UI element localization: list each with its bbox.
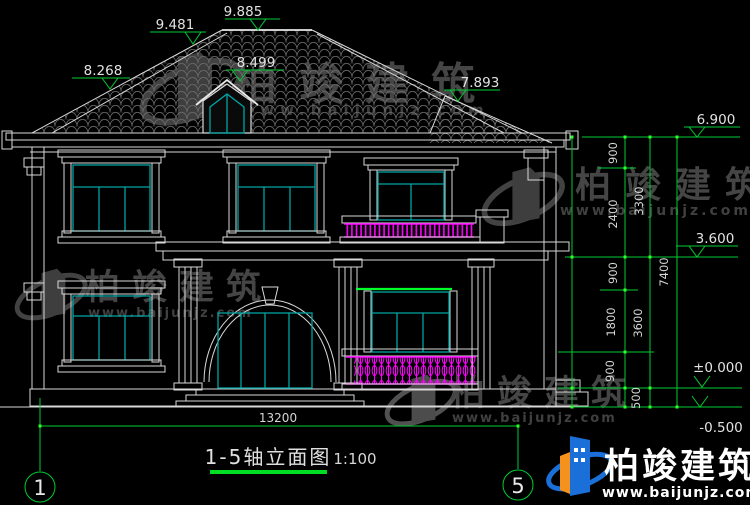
axis-number: 1 [33,476,46,500]
porch-window-trim-right [450,291,457,352]
elevation-flag-upper-hip: 9.481 [150,17,206,44]
pilaster-left-upper [27,167,41,175]
title-underline [210,470,327,474]
elevation-value: 9.481 [156,17,195,33]
window-sill-band [58,366,165,372]
window-cornice-band [62,157,161,163]
elevation-flag-ground: ±0.000 [693,360,743,387]
balcony-door-trim-right [445,170,452,220]
brand-logo-color: 柏竣建筑 www.baijunjz.com [544,436,750,501]
window-trim-left [229,163,236,233]
window-cornice [223,150,330,157]
drawing-scale: 1:100 [333,450,376,468]
balcony-pier-cap [476,210,508,217]
window-sill-band [58,237,165,243]
window-trim-right [152,163,159,233]
elevation-flag-ridge: 9.885 [224,4,280,30]
elevation-flag-grade: -0.500 [692,396,743,436]
title-block: 1-5轴立面图 1:100 [205,445,377,474]
elevation-value: 9.885 [224,4,263,20]
dim-floor: 500 [629,387,643,409]
axis-bubble-5: 5 [503,470,533,500]
dim-segment: 900 [603,360,617,382]
window-cornice [58,150,165,157]
window-glazing [238,165,315,231]
drawing-title: 1-5轴立面图 [205,445,332,469]
watermark-site-text: www.baijunjz.com [452,411,617,426]
window-trim-right [317,163,324,233]
balcony-balusters [346,224,474,237]
dim-overall: 7400 [657,257,671,286]
dim-floor: 3300 [632,186,646,215]
watermark-brand-text: 柏竣建筑 [575,165,750,206]
porch-balusters [354,357,476,384]
dim-floor: 3600 [631,308,645,337]
elevation-value: 8.499 [237,55,276,71]
entrance-step-1 [196,389,344,395]
balcony-door-header [364,158,458,165]
axis-number: 5 [511,474,524,498]
window-cornice-band [227,157,326,163]
entrance-step-2 [186,395,354,401]
window-sill [227,231,326,237]
window-2f-center [223,150,330,243]
dim-segment: 900 [606,142,620,164]
window-2f-left [58,150,165,243]
window-glazing [73,165,150,231]
elevation-value: 3.600 [696,231,735,247]
balcony-door-header-band [368,165,454,170]
elevation-value: 8.268 [84,63,123,79]
elevation-flag-second-floor: 3.600 [676,231,738,257]
total-width-dim: 13200 [259,411,297,425]
brand-name: 柏竣建筑 [604,446,750,487]
elevation-value: ±0.000 [693,360,743,376]
porch-1f [342,259,494,390]
window-trim-left [64,163,71,233]
elevation-svg: 柏竣建筑 www.baijunjz.com 柏竣建筑 www.baijunjz.… [0,0,750,505]
brand-site: www.baijunjz.com [602,485,750,501]
window-sill [62,360,161,366]
porch-window-trim-left [364,291,371,352]
pilaster-cap-left-upper [24,158,44,167]
balcony-2f [340,158,508,243]
dim-segment: 1800 [604,307,618,336]
elevation-value: -0.500 [699,420,743,436]
axis-bubble-1: 1 [25,472,55,502]
elevation-value: 7.893 [461,75,500,91]
dim-segment: 2400 [606,199,620,228]
elevation-value: 6.900 [697,112,736,128]
elevation-flag-eave: 6.900 [684,112,740,137]
balcony-door-trim-left [370,170,377,220]
brand-logo-watermark-icon [477,164,569,233]
window-sill [62,231,161,237]
watermark-site-text: www.baijunjz.com [560,203,750,219]
cad-elevation-drawing: 柏竣建筑 www.baijunjz.com 柏竣建筑 www.baijunjz.… [0,0,750,505]
dim-segment: 900 [606,262,620,284]
porch-window-glazing [372,292,449,352]
